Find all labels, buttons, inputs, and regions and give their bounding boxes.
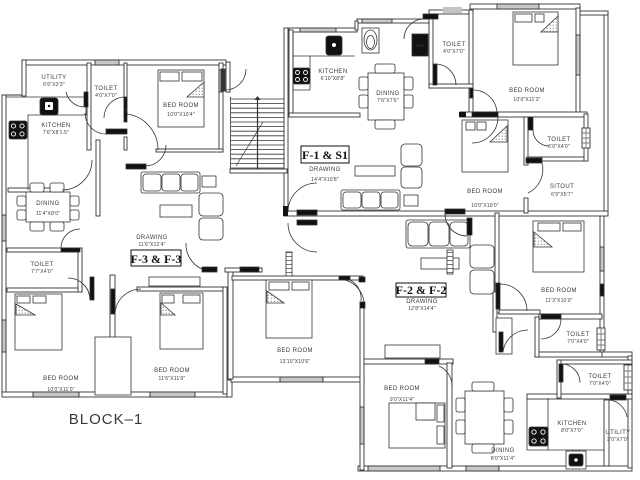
- svg-text:F-1 & S1: F-1 & S1: [302, 148, 348, 162]
- svg-text:11'6"X12'4": 11'6"X12'4": [138, 242, 165, 248]
- svg-text:11'3"X10'0": 11'3"X10'0": [545, 298, 572, 304]
- svg-text:DRAWING: DRAWING: [309, 167, 341, 173]
- svg-text:3'0"X7'0": 3'0"X7'0": [607, 437, 629, 443]
- svg-text:10'0"X11'3": 10'0"X11'3": [513, 97, 540, 103]
- svg-text:BLOCK–1: BLOCK–1: [69, 411, 144, 428]
- svg-text:13'10"X10'6": 13'10"X10'6": [280, 359, 311, 365]
- svg-text:KITCHEN: KITCHEN: [318, 69, 347, 75]
- svg-text:8'0"X7'0": 8'0"X7'0": [561, 428, 583, 434]
- svg-text:BED ROOM: BED ROOM: [541, 288, 577, 294]
- svg-text:7'0"X4'0": 7'0"X4'0": [589, 381, 611, 387]
- svg-text:UTILITY: UTILITY: [41, 75, 66, 81]
- svg-text:BED ROOM: BED ROOM: [384, 386, 420, 392]
- svg-text:BED ROOM: BED ROOM: [509, 88, 545, 94]
- svg-text:6'6"X3'3": 6'6"X3'3": [43, 82, 65, 88]
- svg-text:BED ROOM: BED ROOM: [277, 348, 313, 354]
- svg-text:9'0"X11'4": 9'0"X11'4": [390, 397, 414, 403]
- svg-text:11'4"X8'0": 11'4"X8'0": [36, 211, 60, 217]
- svg-text:11'6"X11'0": 11'6"X11'0": [159, 376, 186, 382]
- svg-text:TOILET: TOILET: [566, 332, 589, 338]
- svg-text:BED ROOM: BED ROOM: [467, 189, 503, 195]
- svg-text:BED ROOM: BED ROOM: [43, 376, 79, 382]
- svg-text:W/M: W/M: [416, 43, 424, 48]
- svg-text:6'0"X4'0": 6'0"X4'0": [548, 144, 570, 150]
- svg-text:BED ROOM: BED ROOM: [154, 368, 190, 374]
- svg-text:6'10"X8'8": 6'10"X8'8": [321, 76, 346, 82]
- svg-text:TOILET: TOILET: [588, 374, 611, 380]
- svg-text:F-3 & F-3: F-3 & F-3: [131, 252, 182, 266]
- svg-text:DRAWING: DRAWING: [136, 235, 168, 241]
- svg-text:TOILET: TOILET: [442, 42, 465, 48]
- svg-text:12'8"X14'4": 12'8"X14'4": [408, 306, 436, 312]
- svg-text:KITCHEN: KITCHEN: [557, 421, 586, 427]
- svg-text:BED ROOM: BED ROOM: [163, 103, 199, 109]
- svg-text:KITCHEN: KITCHEN: [41, 123, 70, 129]
- svg-text:4'0"X7'0": 4'0"X7'0": [443, 49, 465, 55]
- svg-text:DINING: DINING: [36, 201, 59, 207]
- svg-text:TOILET: TOILET: [30, 262, 53, 268]
- svg-text:DRAWING: DRAWING: [406, 299, 438, 305]
- svg-text:DINING: DINING: [491, 448, 514, 454]
- svg-text:SITOUT: SITOUT: [550, 184, 574, 190]
- svg-text:7'7"X4'0": 7'7"X4'0": [31, 269, 53, 275]
- svg-text:F-2 & F-2: F-2 & F-2: [396, 283, 447, 297]
- svg-text:TOILET: TOILET: [547, 137, 570, 143]
- svg-text:10'0"X10'0": 10'0"X10'0": [471, 203, 499, 209]
- svg-text:TOILET: TOILET: [94, 86, 117, 92]
- svg-text:DINING: DINING: [376, 91, 399, 97]
- svg-text:7'0"X4'0": 7'0"X4'0": [567, 339, 589, 345]
- svg-text:14'4"X10'8": 14'4"X10'8": [311, 177, 339, 183]
- svg-text:7'6"X8'1.5": 7'6"X8'1.5": [43, 130, 69, 136]
- svg-text:4'0"X7'0": 4'0"X7'0": [95, 93, 117, 99]
- svg-text:6'9"X5'7": 6'9"X5'7": [551, 192, 573, 198]
- svg-text:8'0"X11'4": 8'0"X11'4": [491, 456, 515, 462]
- svg-text:10'0"X11'0": 10'0"X11'0": [47, 387, 74, 393]
- svg-text:10'0"X10'4": 10'0"X10'4": [167, 112, 195, 118]
- svg-text:7'6"X7'6": 7'6"X7'6": [377, 98, 399, 104]
- svg-text:UTILITY: UTILITY: [605, 430, 630, 436]
